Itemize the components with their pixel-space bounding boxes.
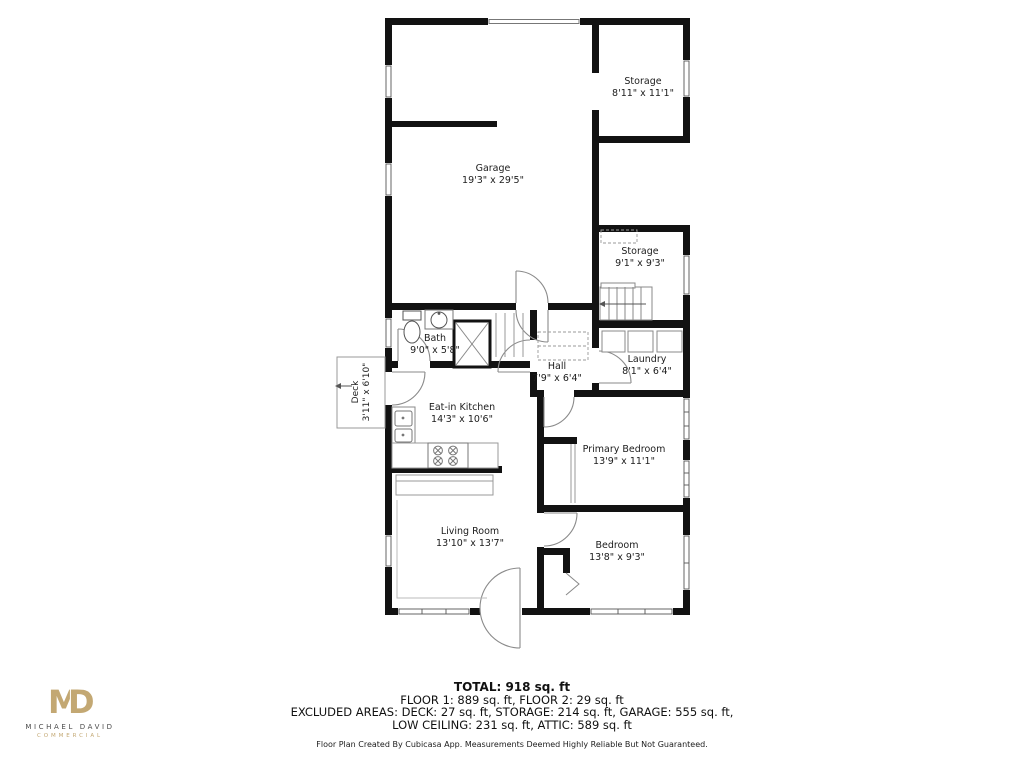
low-ceiling-line bbox=[397, 500, 487, 598]
room-dims-bath: 9'0" x 5'8" bbox=[410, 345, 460, 356]
room-label-storage-2: Storage bbox=[621, 246, 658, 257]
room-dims-primary-bedroom: 13'9" x 11'1" bbox=[593, 456, 655, 467]
room-label-hall: Hall bbox=[548, 361, 566, 372]
room-dims-storage-1: 8'11" x 11'1" bbox=[612, 88, 674, 99]
area-summary: TOTAL: 918 sq. ft FLOOR 1: 889 sq. ft, F… bbox=[0, 681, 1024, 749]
room-label-bath: Bath bbox=[424, 333, 446, 344]
stove-icon bbox=[428, 443, 468, 468]
bath-sink-icon bbox=[425, 310, 453, 329]
window-icon bbox=[683, 60, 690, 97]
bifold-door-icon bbox=[566, 573, 579, 595]
room-label-bedroom: Bedroom bbox=[596, 540, 639, 551]
window-icon bbox=[683, 255, 690, 295]
room-dims-bedroom: 13'8" x 9'3" bbox=[589, 552, 645, 563]
room-dims-deck: 3'11" x 6'10" bbox=[362, 363, 372, 422]
room-dims-hall: 7'9" x 6'4" bbox=[532, 373, 582, 384]
md-monogram-icon: M D bbox=[22, 684, 118, 718]
room-label-deck: Deck bbox=[351, 380, 361, 403]
window-icon bbox=[385, 163, 392, 196]
room-label-laundry: Laundry bbox=[628, 354, 667, 365]
room-label-garage: Garage bbox=[476, 163, 511, 174]
window-icon bbox=[398, 608, 470, 615]
room-dims-living-room: 13'10" x 13'7" bbox=[436, 538, 504, 549]
excluded-areas-text-1: EXCLUDED AREAS: DECK: 27 sq. ft, STORAGE… bbox=[0, 706, 1024, 718]
deck-outline bbox=[337, 357, 385, 428]
room-dims-laundry: 8'1" x 6'4" bbox=[622, 366, 672, 377]
excluded-areas-text-2: LOW CEILING: 231 sq. ft, ATTIC: 589 sq. … bbox=[0, 719, 1024, 731]
laundry-appliances-icon bbox=[602, 331, 682, 352]
room-dims-storage-2: 9'1" x 9'3" bbox=[615, 258, 665, 269]
toilet-icon bbox=[403, 311, 421, 343]
monogram-d: D bbox=[68, 684, 95, 718]
window-icon bbox=[385, 535, 392, 567]
window-icon bbox=[683, 460, 690, 498]
broker-tagline-text: COMMERCIAL bbox=[22, 733, 118, 739]
floor-plan-drawing: Storage 8'11" x 11'1" Garage 19'3" x 29'… bbox=[0, 0, 1024, 768]
room-dims-kitchen: 14'3" x 10'6" bbox=[431, 414, 493, 425]
garage-door-icon bbox=[489, 20, 579, 24]
floor-plan-page: Storage 8'11" x 11'1" Garage 19'3" x 29'… bbox=[0, 0, 1024, 768]
primary-closet-sliding-door-icon bbox=[571, 444, 575, 503]
room-label-primary-bedroom: Primary Bedroom bbox=[583, 444, 666, 455]
window-icon bbox=[683, 398, 690, 440]
window-icon bbox=[385, 65, 392, 98]
broker-logo: M D MICHAEL DAVID COMMERCIAL bbox=[22, 684, 118, 739]
door-arc-garage-entry bbox=[516, 271, 548, 303]
window-icon bbox=[385, 318, 392, 348]
hall-closet-shelf-dashed bbox=[538, 332, 588, 360]
kitchen-sink-icon bbox=[392, 407, 415, 445]
broker-name-text: MICHAEL DAVID bbox=[22, 723, 118, 731]
staircase-icon bbox=[600, 283, 652, 320]
door-arc-bedroom bbox=[544, 513, 577, 546]
closet-sliding-door-icon bbox=[496, 313, 523, 357]
disclaimer-text: Floor Plan Created By Cubicasa App. Meas… bbox=[0, 740, 1024, 749]
shower-icon bbox=[454, 321, 490, 367]
room-label-storage-1: Storage bbox=[624, 76, 661, 87]
room-label-kitchen: Eat-in Kitchen bbox=[429, 402, 495, 413]
window-icon bbox=[590, 608, 673, 615]
door-arc-primary-bedroom bbox=[544, 397, 574, 427]
room-label-living-room: Living Room bbox=[441, 526, 499, 537]
living-room-ledge bbox=[396, 475, 493, 495]
window-icon bbox=[683, 535, 690, 590]
room-dims-garage: 19'3" x 29'5" bbox=[462, 175, 524, 186]
door-arc-deck bbox=[392, 372, 425, 405]
